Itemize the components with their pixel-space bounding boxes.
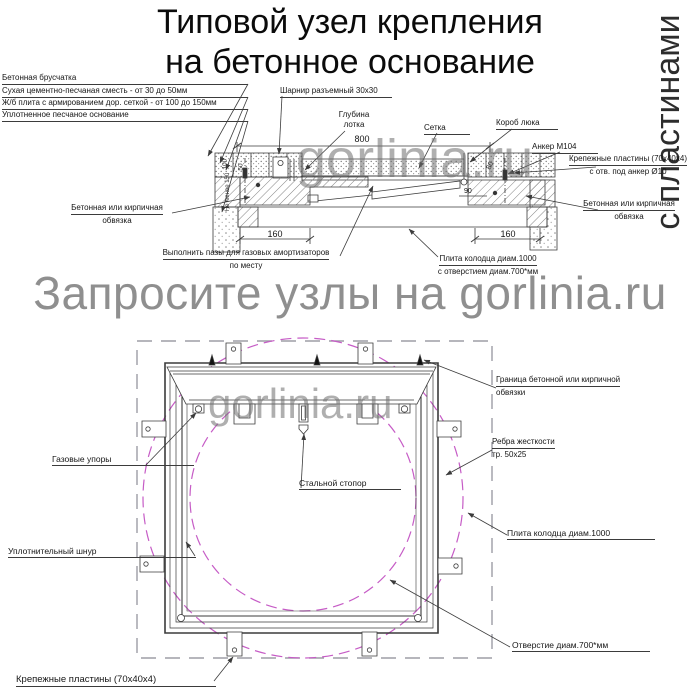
dim-160-right: 160 xyxy=(486,228,530,240)
callout-plates-right: Крепежные пластины (70х40х4) с отв. под … xyxy=(556,153,700,178)
dim-160-left: 160 xyxy=(253,228,297,240)
callout-mesh: Сетка xyxy=(424,122,470,135)
callout-gas-struts: Газовые упоры xyxy=(52,453,194,466)
watermark-overlay-section: gorlinia.ru xyxy=(296,128,533,190)
watermark-overlay-plan: gorlinia.ru xyxy=(208,380,392,428)
callout-tray-depth: Глубина лотка xyxy=(326,110,382,130)
callout-seal-cord: Уплотнительный шнур xyxy=(8,545,196,558)
callout-paving: Бетонная брусчатка xyxy=(2,72,248,85)
callout-well-slab-section: Плита колодца диам.1000 с отверстием диа… xyxy=(418,253,558,278)
watermark-banner: Запросите узлы на gorlinia.ru xyxy=(0,266,700,320)
callout-hatch-box: Короб люка xyxy=(496,117,558,130)
callout-grooves: Выполнить пазы для газовых амортизаторов… xyxy=(140,247,352,272)
page-title: Типовой узел крепления на бетонное основ… xyxy=(0,2,700,82)
dim-90: 90 xyxy=(464,186,472,198)
callout-hinge: Шарнир разъемный 30х30 xyxy=(280,85,392,98)
callout-sand: Уплотненное песчаное основание xyxy=(2,109,248,122)
callout-edging-right: Бетонная или кирпичная обвязка xyxy=(566,198,692,223)
callout-ribs: Ребра жесткости тр. 50х25 xyxy=(492,436,555,461)
callout-stopper: Стальной стопор xyxy=(299,477,401,490)
callout-well-slab-plan: Плита колодца диам.1000 xyxy=(507,527,655,540)
callout-hole: Отверстие диам.700*мм xyxy=(512,639,650,652)
dim-800: 800 xyxy=(340,133,384,145)
title-line-1: Типовой узел крепления xyxy=(0,2,700,42)
dim-50: 50 xyxy=(236,163,248,170)
callout-boundary: Граница бетонной или кирпичной обвязки xyxy=(496,374,620,399)
drawing-page: Типовой узел крепления на бетонное основ… xyxy=(0,0,700,700)
callout-edging-left: Бетонная или кирпичная обвязка xyxy=(58,202,176,227)
dim-min-150: Не менее 150 xyxy=(222,173,234,211)
callout-fixing-plates: Крепежные пластины (70х40х4) xyxy=(16,674,216,687)
dim-100: 100 xyxy=(219,159,231,170)
